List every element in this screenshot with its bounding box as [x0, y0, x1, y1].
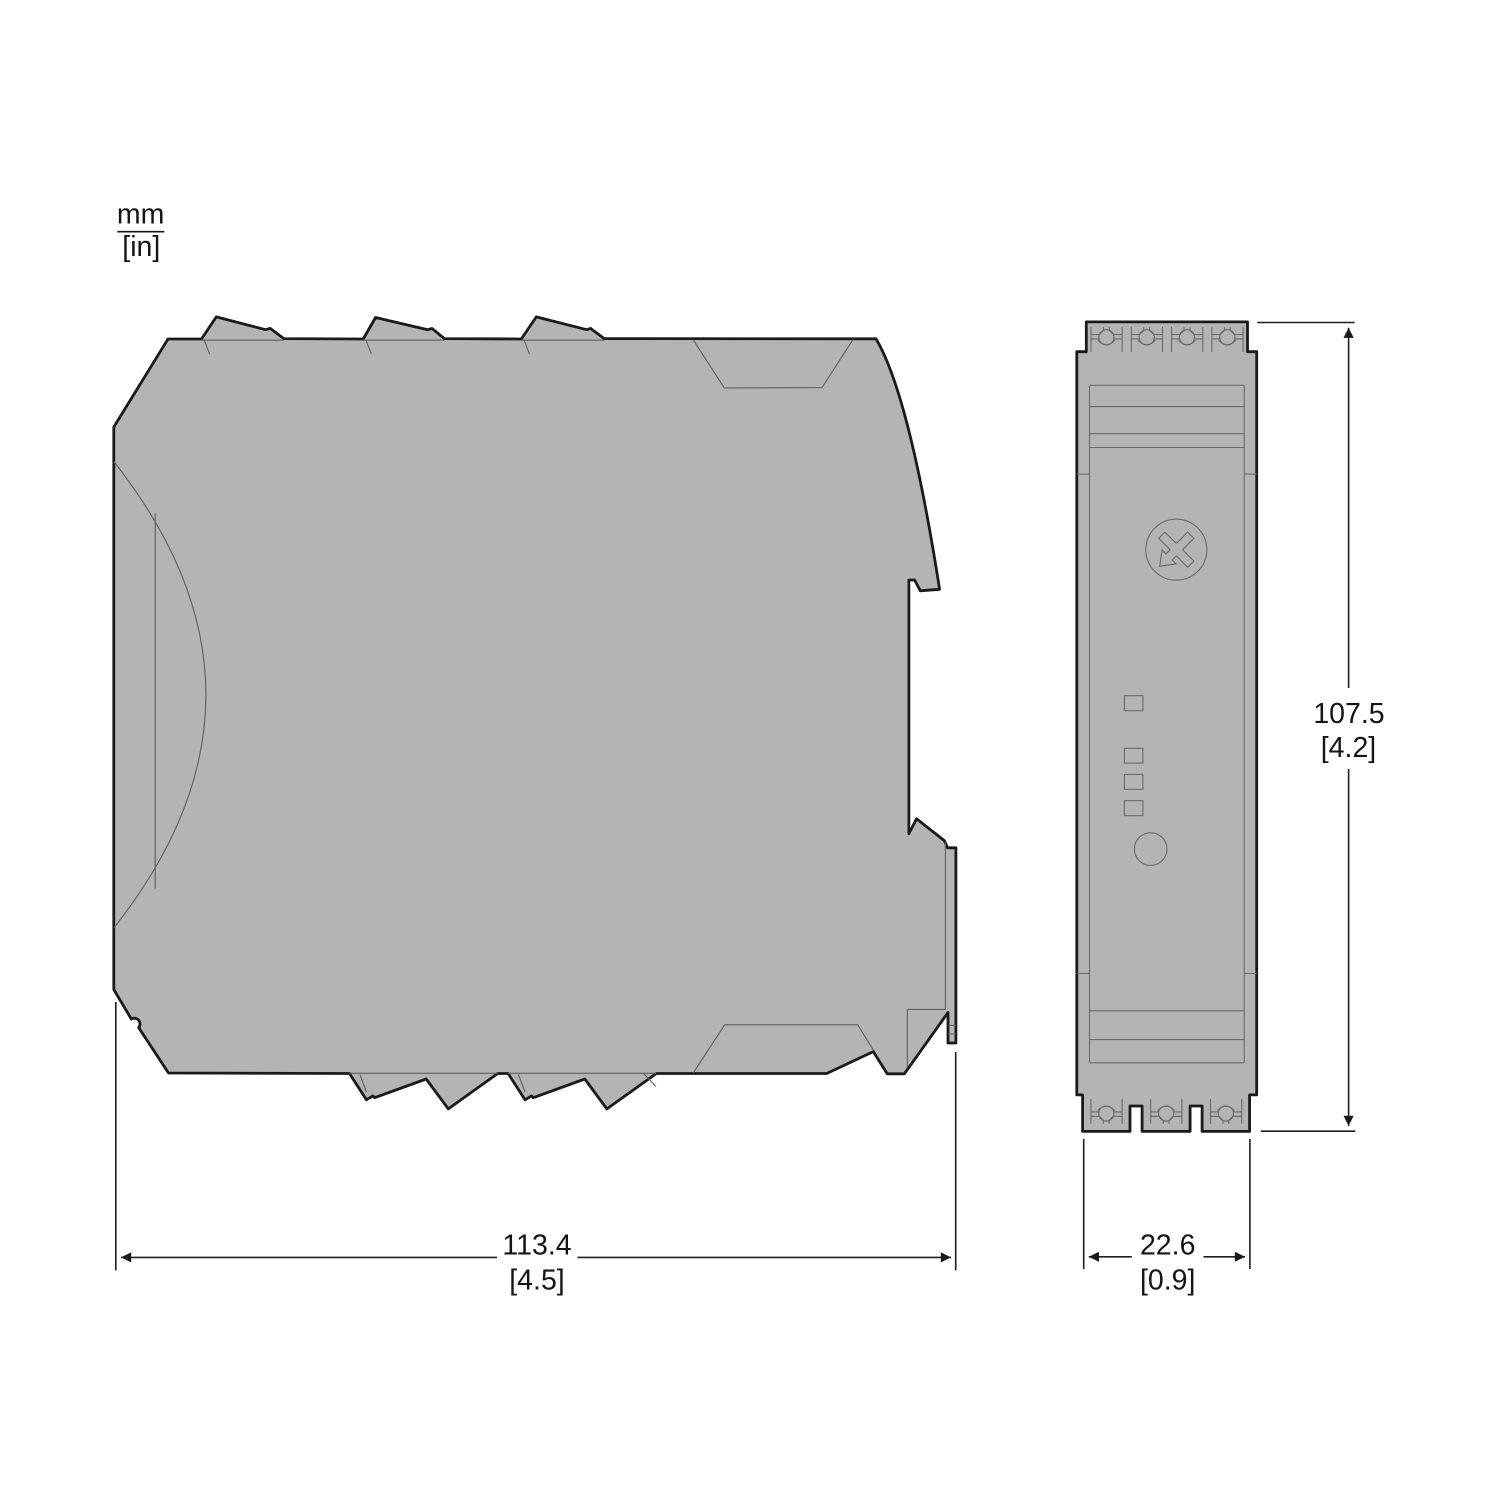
svg-text:[4.2]: [4.2]	[1321, 732, 1376, 764]
svg-text:[0.9]: [0.9]	[1140, 1265, 1195, 1297]
svg-text:[4.5]: [4.5]	[509, 1265, 564, 1297]
svg-text:22.6: 22.6	[1140, 1230, 1195, 1262]
svg-text:113.4: 113.4	[502, 1230, 571, 1262]
svg-text:107.5: 107.5	[1313, 698, 1384, 730]
svg-text:[in]: [in]	[122, 231, 160, 263]
svg-text:mm: mm	[117, 199, 164, 231]
